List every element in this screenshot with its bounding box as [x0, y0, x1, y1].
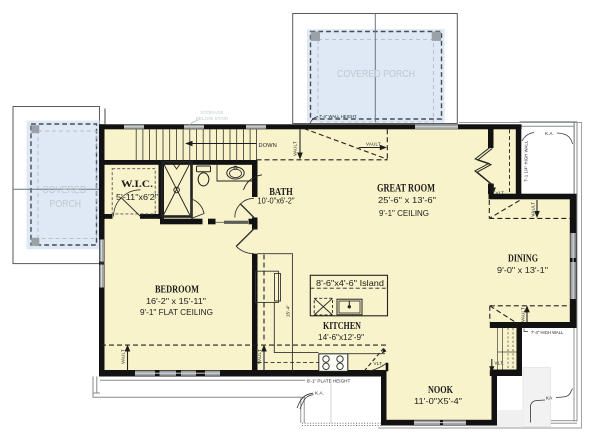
svg-text:10'-0"x6'-2": 10'-0"x6'-2" [258, 195, 295, 205]
svg-text:NOOK: NOOK [428, 384, 453, 396]
svg-text:K.A.: K.A. [315, 390, 324, 395]
svg-text:PORCH: PORCH [50, 199, 82, 210]
svg-text:VAULT: VAULT [120, 349, 125, 364]
svg-text:STORAGE: STORAGE [200, 110, 223, 116]
svg-text:VLT.: VLT. [374, 361, 383, 366]
svg-text:VAULT: VAULT [366, 141, 381, 146]
svg-text:7'-1 1/4" HIGH WALL: 7'-1 1/4" HIGH WALL [524, 140, 529, 182]
svg-text:W.I.C.: W.I.C. [121, 180, 153, 190]
svg-text:DOWN: DOWN [259, 143, 278, 149]
svg-text:9'-1" CEILING: 9'-1" CEILING [379, 208, 429, 218]
svg-text:BEDROOM: BEDROOM [155, 284, 199, 296]
svg-text:7'-4" HIGH WALL: 7'-4" HIGH WALL [531, 330, 564, 335]
svg-text:9'-1" FLAT CEILING: 9'-1" FLAT CEILING [140, 307, 213, 317]
svg-text:VAULT: VAULT [521, 307, 526, 322]
svg-text:VAULT: VAULT [293, 141, 298, 156]
svg-text:COVERED: COVERED [42, 185, 86, 196]
svg-text:16'-2" x 15'-11": 16'-2" x 15'-11" [146, 296, 206, 306]
svg-text:11'-0"X5'-4": 11'-0"X5'-4" [414, 396, 462, 406]
svg-text:VLT.: VLT. [496, 191, 505, 196]
svg-text:14'-6"x12'-9": 14'-6"x12'-9" [318, 332, 364, 342]
svg-text:KA: KA [546, 395, 553, 400]
svg-text:KITCHEN: KITCHEN [323, 320, 361, 332]
svg-text:9'-0" x 13'-1": 9'-0" x 13'-1" [497, 265, 548, 275]
svg-text:VAULT: VAULT [531, 202, 536, 217]
svg-text:K.A.: K.A. [545, 131, 554, 136]
svg-text:GREAT ROOM: GREAT ROOM [377, 182, 435, 194]
svg-text:7'-4" WALL HEIGHT.: 7'-4" WALL HEIGHT. [319, 114, 357, 119]
svg-text:8'-1" PLATE HEIGHT: 8'-1" PLATE HEIGHT [307, 379, 350, 384]
svg-text:COVERED PORCH: COVERED PORCH [337, 69, 415, 80]
svg-text:BELOW STAIR: BELOW STAIR [196, 116, 229, 122]
svg-text:VAULT: VAULT [257, 349, 262, 364]
svg-text:25'-6" x 13'-6": 25'-6" x 13'-6" [378, 195, 436, 205]
svg-text:DINING: DINING [508, 252, 538, 264]
svg-text:15'-4": 15'-4" [286, 305, 292, 318]
svg-text:8'-6"x4'-6" Island: 8'-6"x4'-6" Island [316, 278, 384, 288]
